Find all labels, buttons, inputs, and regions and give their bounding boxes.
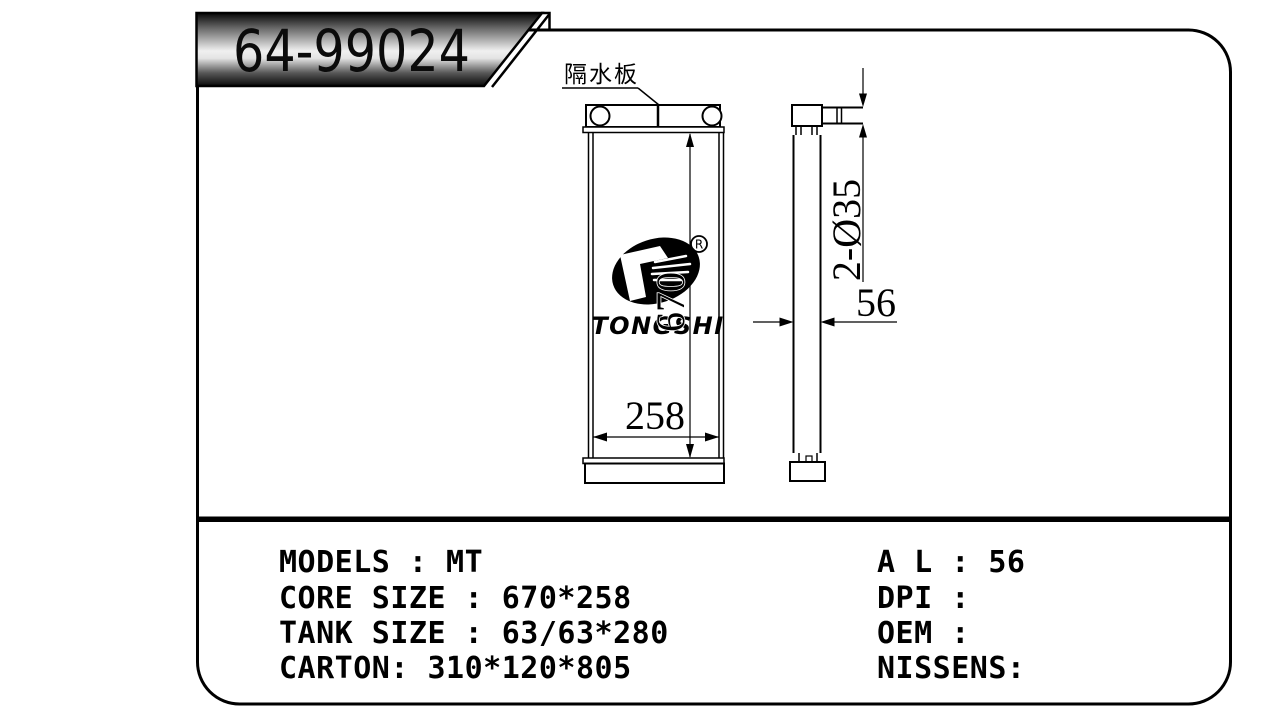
spec-core-size: CORE SIZE : 670*258 xyxy=(279,581,632,616)
pipe-dim-arrow-up xyxy=(859,124,867,138)
spec-sheet: 64-99024 隔水板 258 xyxy=(0,0,1270,724)
spec-table: MODELS : MT CORE SIZE : 670*258 TANK SIZ… xyxy=(279,545,1026,686)
registered-mark-letter: R xyxy=(695,238,703,252)
side-top-pins xyxy=(796,126,817,135)
spec-al: A L : 56 xyxy=(877,545,1026,580)
width-dim-arrow-left xyxy=(593,433,607,442)
separator-plate-label: 隔水板 xyxy=(564,62,639,88)
depth-dim-arrow-left xyxy=(821,318,835,327)
top-header-plate xyxy=(583,127,724,133)
height-dim-arrow-down xyxy=(686,444,694,458)
side-bottom-pins xyxy=(799,453,817,462)
spec-column-left: MODELS : MT CORE SIZE : 670*258 TANK SIZ… xyxy=(279,545,669,686)
bottom-tank xyxy=(585,464,724,484)
part-number-banner: 64-99024 xyxy=(197,13,550,87)
spec-nissens: NISSENS: xyxy=(877,651,1026,686)
inlet-pipe xyxy=(822,108,863,124)
depth-dim-arrow-right xyxy=(780,318,794,327)
spec-carton: CARTON: 310*120*805 xyxy=(279,651,632,686)
side-bottom-tank xyxy=(790,462,825,481)
drawing-canvas: 64-99024 隔水板 258 xyxy=(0,0,1270,724)
height-dim-arrow-up xyxy=(686,133,694,147)
radiator-side-view: 2-Ø35 56 xyxy=(753,68,897,481)
part-number: 64-99024 xyxy=(233,17,470,85)
spec-tank-size: TANK SIZE : 63/63*280 xyxy=(279,616,669,651)
separator-leader-line xyxy=(638,88,659,105)
top-tank-port-right xyxy=(703,107,722,126)
spec-models: MODELS : MT xyxy=(279,545,483,580)
side-top-tank xyxy=(792,105,822,126)
depth-dim-text: 56 xyxy=(856,280,896,325)
spec-divider-bar xyxy=(197,517,1231,523)
height-dim-text: 670 xyxy=(648,272,693,332)
spec-column-right: A L : 56 DPI : OEM : NISSENS: xyxy=(877,545,1026,686)
spec-oem: OEM : xyxy=(877,616,970,651)
pipe-dim-text: 2-Ø35 xyxy=(824,179,869,281)
pipe-dim-arrow-down xyxy=(859,94,867,108)
width-dim-text: 258 xyxy=(625,393,685,438)
top-tank-port-left xyxy=(591,107,610,126)
spec-dpi: DPI : xyxy=(877,581,970,616)
width-dim-arrow-right xyxy=(705,433,719,442)
